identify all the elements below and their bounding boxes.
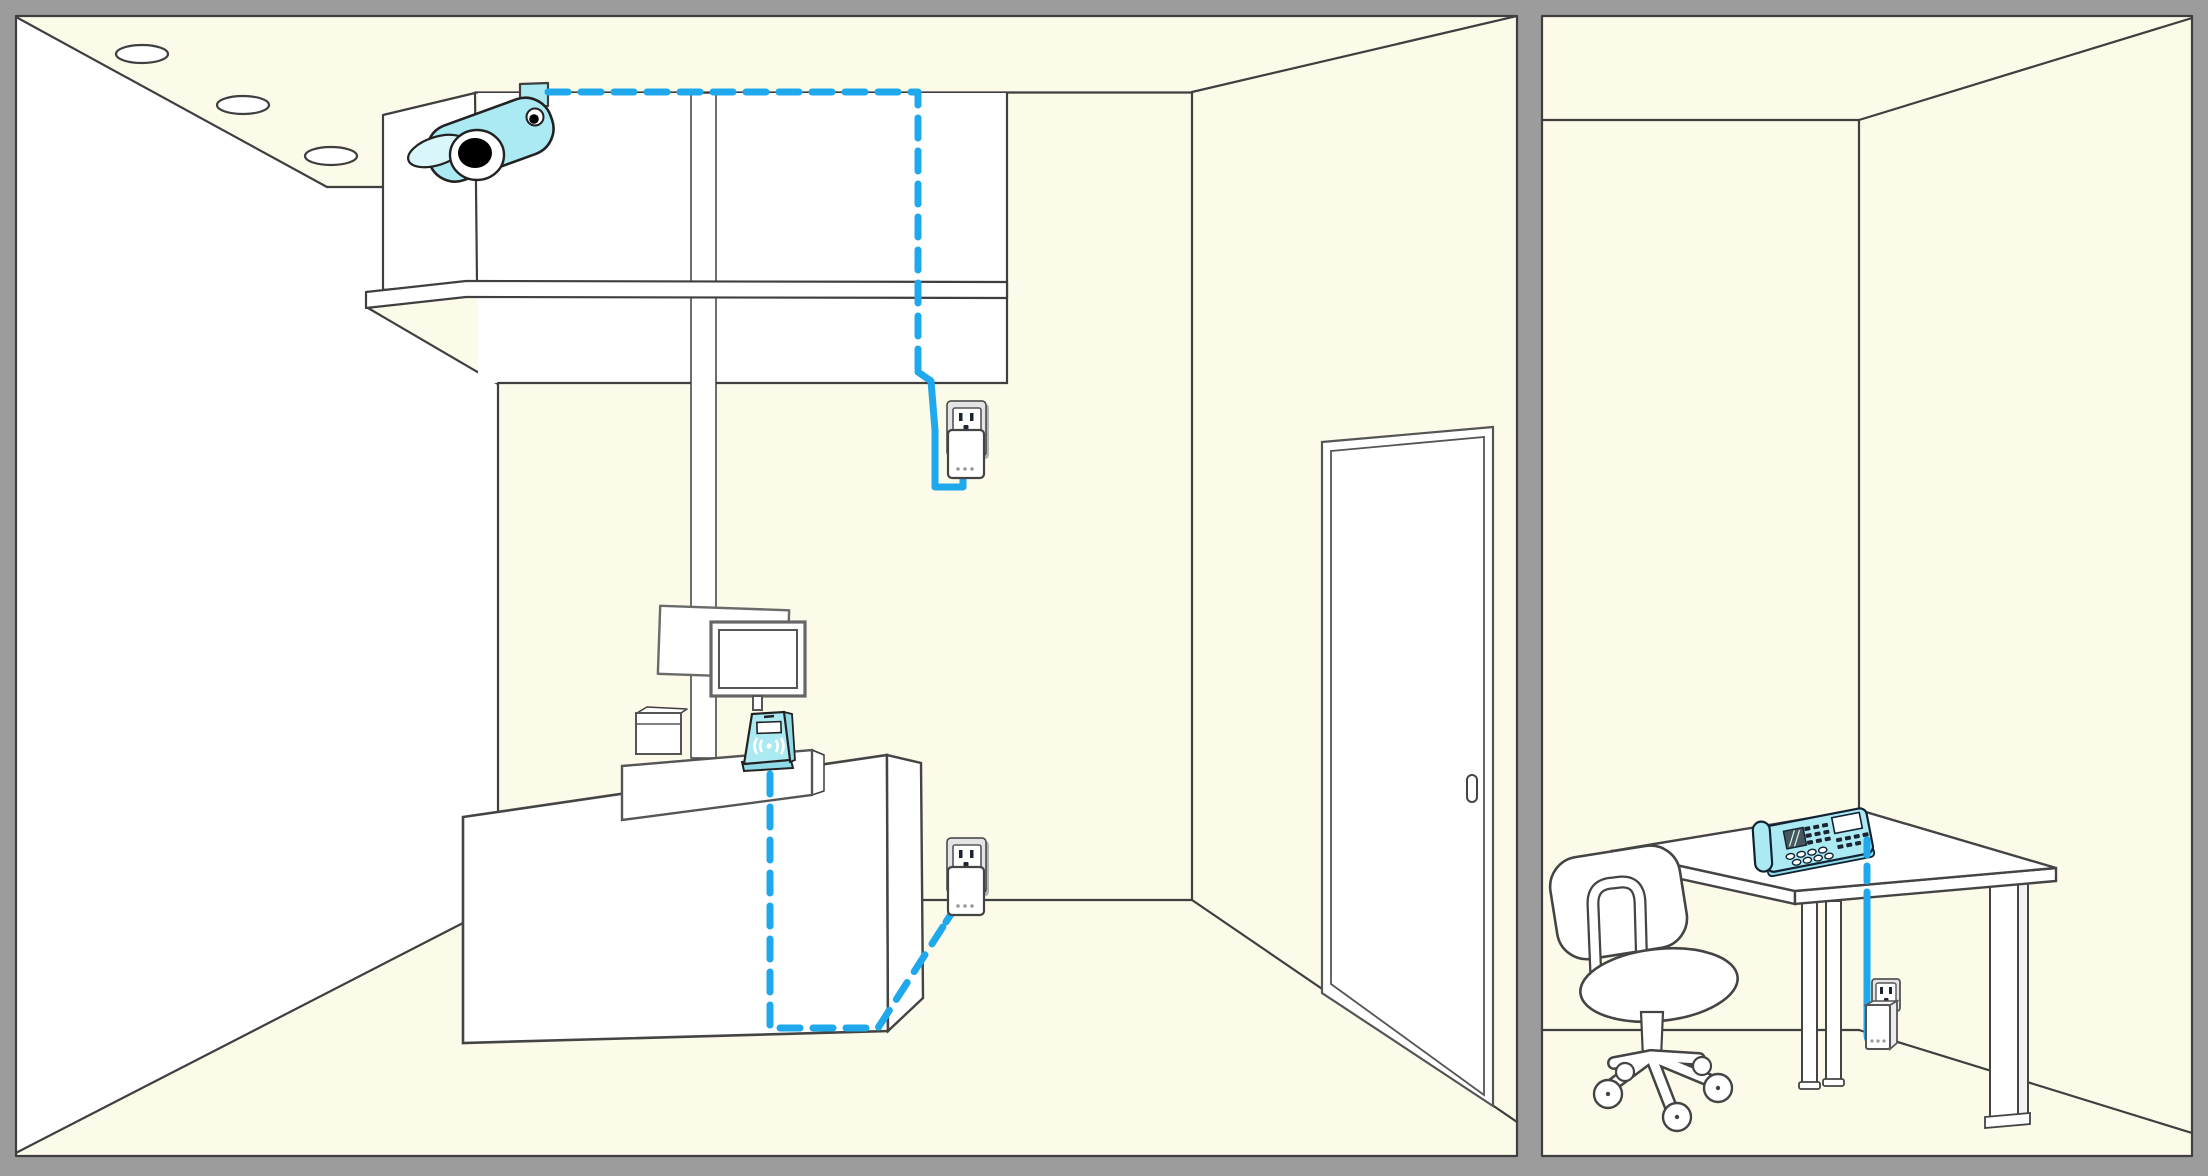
powerline-adapter-upper	[947, 401, 989, 478]
desk-leg-side	[2018, 879, 2028, 1116]
phone-handset	[1752, 821, 1772, 872]
recessed-light-icon	[116, 45, 168, 63]
power-outlet-lower	[947, 838, 989, 915]
desk-foot	[1799, 1082, 1820, 1089]
reader-slot	[764, 716, 774, 717]
desk-leg	[1802, 902, 1817, 1085]
powerline-adapter-lower	[947, 838, 989, 915]
adapter-side	[1890, 1001, 1897, 1049]
door-frame	[1322, 427, 1493, 1106]
pos-monitor-screen	[719, 630, 797, 688]
camera-lens	[458, 138, 492, 168]
power-outlet-upper	[947, 401, 989, 478]
door-handle[interactable]	[1467, 775, 1477, 802]
chair-back	[1546, 841, 1691, 963]
desk-leg	[1990, 879, 2018, 1119]
contactless-card-reader	[742, 712, 795, 771]
caster-wheel	[1693, 1057, 1711, 1075]
desk-leg	[1826, 901, 1841, 1082]
illustration-canvas	[0, 0, 2208, 1176]
under-shelf-wall	[478, 298, 1007, 383]
recessed-light-icon	[305, 147, 357, 165]
office-room-panel	[1542, 16, 2192, 1156]
caster-wheel	[1616, 1063, 1634, 1081]
powerline-adapter-office	[1866, 1001, 1897, 1049]
soffit-wall	[478, 93, 1007, 283]
desk-foot	[1823, 1079, 1844, 1086]
receipt-printer	[636, 713, 681, 754]
store-room-panel	[6, 16, 1517, 1158]
reader-screen	[757, 722, 781, 734]
scene	[0, 0, 2208, 1176]
recessed-light-icon	[217, 96, 269, 114]
reader-body	[744, 712, 790, 764]
sliding-door	[1322, 427, 1493, 1106]
pos-hutch-side	[812, 750, 824, 795]
monitor-stand	[753, 696, 762, 710]
camera-indicator-dot	[529, 114, 539, 124]
